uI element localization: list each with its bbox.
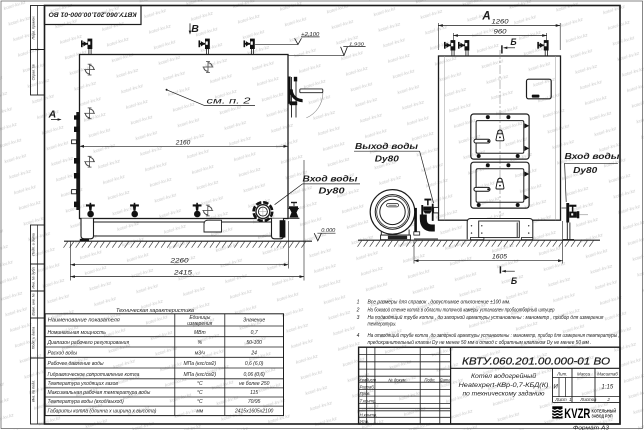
- svg-text:МПа (кгс/см2): МПа (кгс/см2): [183, 361, 216, 367]
- svg-text:2: 2: [356, 307, 360, 313]
- svg-text:Лит.: Лит.: [556, 371, 567, 376]
- svg-text:Перв. примен.: Перв. примен.: [32, 16, 36, 40]
- svg-text:Heatexpert-КВр-0,7-КБД(К): Heatexpert-КВр-0,7-КБД(К): [459, 382, 549, 389]
- svg-text:Гидравлическое сопротивление к: Гидравлическое сопротивление котла: [48, 372, 140, 378]
- svg-text:Значение: Значение: [243, 318, 265, 324]
- svg-text:На отводящий трубе котла ,до з: На отводящий трубе котла ,до запорной ар…: [368, 332, 620, 339]
- svg-text:2415: 2415: [173, 270, 193, 277]
- svg-text:Подп. и дата: Подп. и дата: [32, 233, 36, 256]
- svg-text:Т.контр.: Т.контр.: [360, 398, 377, 403]
- svg-text:Дата: Дата: [439, 377, 452, 382]
- svg-text:Рабочее давление воды: Рабочее давление воды: [48, 361, 104, 367]
- svg-text:2260: 2260: [169, 258, 189, 265]
- svg-text:2: 2: [606, 397, 610, 402]
- svg-text:А: А: [481, 11, 490, 23]
- svg-text:КВТУ.060.201.00.000-01 ВО: КВТУ.060.201.00.000-01 ВО: [49, 11, 137, 18]
- svg-text:Утв.: Утв.: [360, 419, 370, 424]
- svg-text:ЗАВОД РЭП: ЗАВОД РЭП: [592, 414, 613, 419]
- svg-text:Температура воды (вход/выход): Температура воды (вход/выход): [48, 399, 125, 405]
- svg-text:Наименование показателя: Наименование показателя: [48, 318, 120, 324]
- svg-text:°С: °С: [197, 381, 203, 387]
- svg-text:мм: мм: [196, 409, 203, 415]
- svg-text:4: 4: [357, 333, 360, 339]
- svg-text:№ докум.: № докум.: [388, 377, 406, 382]
- svg-text:2415х1605х2100: 2415х1605х2100: [234, 409, 274, 415]
- svg-text:Пров.: Пров.: [360, 391, 371, 396]
- svg-text:°С: °С: [197, 390, 203, 396]
- svg-text:На боковой стенке котла в обла: На боковой стенке котла в области топочн…: [368, 306, 555, 313]
- svg-text:Котел водогрейный: Котел водогрейный: [471, 373, 537, 380]
- svg-text:Подп. и дата: Подп. и дата: [32, 327, 36, 350]
- svg-text:Вход воды: Вход воды: [565, 151, 620, 161]
- svg-text:1,930: 1,930: [349, 41, 364, 47]
- svg-text:Разраб.: Разраб.: [360, 385, 375, 390]
- svg-text:1: 1: [357, 300, 360, 306]
- svg-text:не более 250: не более 250: [239, 381, 270, 387]
- svg-text:0,7: 0,7: [251, 330, 258, 336]
- svg-text:Dy80: Dy80: [573, 166, 598, 175]
- svg-text:Номинальная мощность: Номинальная мощность: [48, 330, 107, 336]
- svg-text:м3/ч: м3/ч: [195, 350, 206, 356]
- svg-text:Б: Б: [510, 37, 516, 47]
- svg-text:МПа (кгс/см2): МПа (кгс/см2): [183, 372, 216, 378]
- svg-text:KVZR: KVZR: [564, 406, 590, 421]
- svg-text:0,6 (6,0): 0,6 (6,0): [245, 361, 264, 367]
- svg-text:предохранительный клапан Dу н: предохранительный клапан Dу не менее 50 …: [368, 339, 592, 346]
- svg-text:Б: Б: [511, 276, 517, 286]
- svg-text:Максимальная рабочая температу: Максимальная рабочая температура воды: [48, 390, 151, 396]
- svg-text:2160: 2160: [175, 139, 191, 146]
- svg-text:Масштаб: Масштаб: [597, 371, 618, 376]
- svg-text:КВТУ.060.201.00.000-01 ВО: КВТУ.060.201.00.000-01 ВО: [462, 356, 610, 367]
- svg-text:1605: 1605: [492, 253, 508, 260]
- svg-text:1:15: 1:15: [602, 385, 614, 391]
- svg-text:960: 960: [494, 28, 508, 35]
- svg-text:°С: °С: [197, 399, 203, 405]
- svg-text:температуры.: температуры.: [368, 321, 397, 327]
- svg-text:0,06 (0,6): 0,06 (0,6): [243, 372, 265, 378]
- svg-text:Лист: Лист: [554, 397, 567, 402]
- svg-text:Расход воды: Расход воды: [48, 350, 78, 356]
- svg-text:МВт: МВт: [194, 330, 206, 336]
- svg-text:Листов: Листов: [579, 397, 597, 402]
- svg-text:Инв. № подл.: Инв. № подл.: [32, 380, 36, 402]
- svg-text:Dy80: Dy80: [319, 186, 346, 195]
- svg-text:Диапазон рабочего регулировани: Диапазон рабочего регулирования: [47, 340, 130, 346]
- svg-text:Все размеры для справок , допу: Все размеры для справок , допустимое отк…: [368, 300, 511, 306]
- svg-text:70/95: 70/95: [248, 399, 261, 405]
- svg-text:А: А: [48, 109, 57, 121]
- svg-text:по техническому заданию: по техническому заданию: [463, 390, 545, 397]
- svg-text:Температура уходящих газов: Температура уходящих газов: [48, 381, 119, 387]
- svg-text:На подводящий трубе котла ,: На подводящий трубе котла , до запорной …: [368, 314, 604, 321]
- svg-text:измерения: измерения: [187, 321, 212, 327]
- svg-text:50-100: 50-100: [246, 340, 262, 346]
- svg-text:%: %: [198, 340, 203, 346]
- svg-text:Подп.: Подп.: [424, 377, 435, 382]
- svg-text:Взам. инв. №: Взам. инв. №: [32, 293, 36, 315]
- svg-text:Инв. № дубл.: Инв. № дубл.: [32, 266, 36, 288]
- svg-text:Габариты котла (длинна х ширин: Габариты котла (длинна х ширина х высота…: [48, 409, 157, 415]
- svg-text:115: 115: [250, 390, 258, 396]
- svg-text:И: И: [554, 385, 559, 391]
- svg-text:Формат А3: Формат А3: [573, 425, 609, 430]
- svg-text:Лист: Лист: [364, 377, 376, 382]
- svg-text:см. п. 2: см. п. 2: [207, 96, 251, 106]
- svg-text:КОТЕЛЬНЫЙ: КОТЕЛЬНЫЙ: [592, 408, 617, 413]
- svg-text:Выход воды: Выход воды: [355, 141, 418, 151]
- svg-text:Справ. №: Справ. №: [32, 64, 36, 80]
- svg-text:Dy80: Dy80: [375, 155, 400, 164]
- svg-text:Н.контр.: Н.контр.: [360, 412, 378, 417]
- svg-text:В: В: [191, 23, 199, 35]
- svg-text:Техническая характеристика: Техническая характеристика: [116, 308, 194, 314]
- svg-text:24: 24: [250, 350, 257, 356]
- svg-text:3: 3: [357, 315, 360, 321]
- svg-text:Вход воды: Вход воды: [303, 173, 358, 183]
- svg-text:Масса: Масса: [577, 371, 591, 376]
- svg-text:1260: 1260: [492, 19, 510, 26]
